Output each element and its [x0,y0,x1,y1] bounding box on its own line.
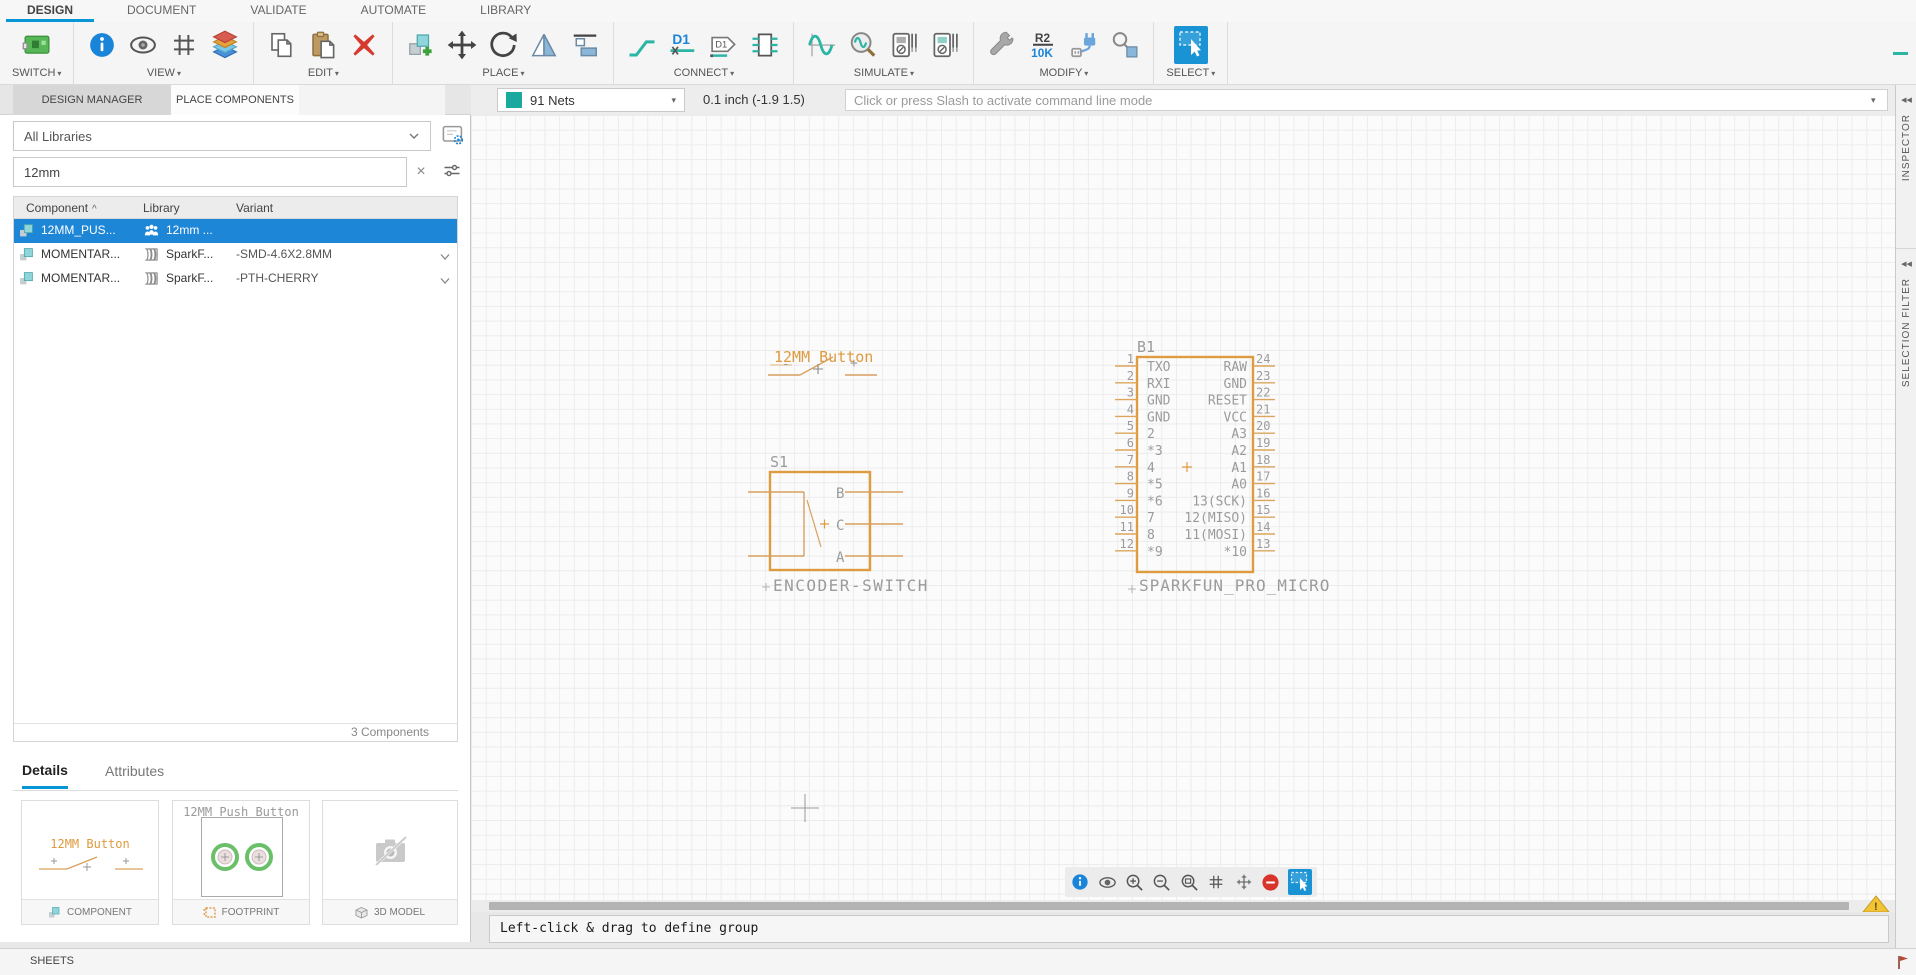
name-tag-text: D1 [716,39,728,49]
minus-circle-icon [1261,873,1280,892]
sort-asc-icon: ^ [92,204,97,215]
workspace-tab-bar: DESIGNDOCUMENTVALIDATEAUTOMATELIBRARY [0,0,1916,22]
select-window-button[interactable] [1288,869,1312,895]
pin-name: 8 [1147,528,1155,543]
pin-name: *6 [1147,494,1163,509]
net-label-button[interactable]: D1 [667,29,699,61]
plus-terminal-label: + [850,356,858,371]
pin-name: RESET [1208,394,1247,409]
component-search-input[interactable] [13,157,407,187]
schematic-canvas[interactable]: 12MM Button - + S1 B C A ENCODER- [471,115,1895,900]
pin-name: 4 [1147,461,1155,476]
morph-shape-button[interactable] [1109,29,1141,61]
cube-3d-icon [355,906,368,919]
net-label-text: D1 [673,31,691,46]
pin-name: RAW [1224,360,1248,375]
pin-number: 10 [1120,503,1134,517]
name-tag-icon: D1 [709,30,739,60]
pin-number: 21 [1256,402,1270,416]
grid-icon [169,30,199,60]
pin-name: TXO [1147,360,1171,375]
sim-probe-button[interactable] [847,29,879,61]
symbol-pro-micro[interactable]: B1 124TXORAW223RXIGND322GNDRESET421GNDVC… [1115,338,1330,595]
layers-icon [210,30,240,60]
selection-box-icon [1290,871,1310,893]
card-footer: COMPONENT [22,899,158,924]
expand-selection-filter-button[interactable]: ◀◀ [1896,256,1916,272]
visibility-button[interactable] [1097,871,1117,893]
variant-name: -SMD-4.6X2.8MM [236,247,332,261]
net-wire-icon [627,30,657,60]
delete-button[interactable] [348,29,380,61]
toolbar-group-label[interactable]: SELECT [1166,67,1209,79]
rotate-icon [488,30,518,60]
table-body: 12MM_PUS...12mm ...MOMENTAR...SparkF...-… [14,219,457,291]
menu-tab-library[interactable]: LIBRARY [453,0,558,22]
symbol-12mm-button[interactable]: 12MM Button - + [768,348,877,375]
component-name: MOMENTAR... [41,247,120,261]
dropdown-caret: ▾ [335,69,339,78]
crosshair-cursor [791,794,819,822]
toolbar-group-label[interactable]: VIEW [147,67,175,79]
pin-number: 7 [1127,453,1134,467]
scrollbar-thumb[interactable] [489,902,1849,910]
tab-label: PLACE COMPONENTS [176,94,294,106]
net-button[interactable] [626,29,658,61]
zoom-fit-button[interactable] [1179,871,1199,893]
component-preview-card[interactable]: 12MM Button COMPONENT [21,800,159,925]
dropdown-caret: ▾ [730,69,734,78]
align-icon [570,30,600,60]
inspector-label: INSPECTOR [1901,114,1912,181]
tab-place-components[interactable]: PLACE COMPONENTS [171,85,299,115]
switch-symbol-preview [31,853,151,879]
delete-x-icon [349,30,379,60]
align-button[interactable] [569,29,601,61]
pin-number: 23 [1256,369,1270,383]
tab-label: DESIGN MANAGER [42,94,143,106]
switch-document-button[interactable] [21,29,53,61]
card-footer-label: COMPONENT [67,907,132,918]
pin-number: 11 [1120,520,1134,534]
chevron-down-icon [408,132,420,140]
remove-button[interactable] [1261,871,1281,893]
status-message: Left-click & drag to define group [489,915,1889,943]
plug-icon [1069,30,1099,60]
library-filter-value: All Libraries [24,129,92,144]
toolbar-group-edit: EDIT▾ [254,22,393,84]
toolbar-group-label[interactable]: SWITCH [12,67,55,79]
crosshair-icon [1235,873,1253,891]
column-header-library[interactable]: Library [143,201,180,215]
library-name: SparkF... [166,271,213,285]
pin-name: A3 [1231,427,1247,442]
managed-library-icon [144,247,159,262]
zoom-in-icon [1125,873,1144,892]
grid-icon [1207,873,1225,891]
footprint-pads [201,817,283,897]
selection-filter-strip: ◀◀ SELECTION FILTER [1896,248,1916,387]
filter-sliders-icon [442,163,462,179]
pin-number: 4 [1127,402,1134,416]
pin-name: *5 [1147,478,1163,493]
nets-count-label: 91 Nets [530,93,575,108]
symbol-encoder-switch[interactable]: S1 B C A ENCODER-SWITCH [748,453,929,595]
pin-number: 3 [1127,386,1134,400]
horizontal-scrollbar[interactable] [471,900,1895,912]
pin-name: *3 [1147,444,1163,459]
pin-name: 7 [1147,511,1155,526]
pin-rows: 124TXORAW223RXIGND322GNDRESET421GNDVCC52… [1115,352,1275,560]
pin-name: VCC [1224,410,1247,425]
pin-name: GND [1147,394,1171,409]
zoom-out-icon [1152,873,1171,892]
board-icon [22,30,52,60]
layer-settings-button[interactable] [209,29,241,61]
eye-icon [128,30,158,60]
sine-wave-icon [807,30,837,60]
command-line-input[interactable] [845,89,1888,111]
details-tab-bar: Details Attributes [13,758,458,790]
grid-toggle-button[interactable] [1206,871,1226,893]
expand-variants-button[interactable] [439,250,451,264]
column-header-variant[interactable]: Variant [236,201,273,215]
library-settings-icon [441,124,465,146]
simulation-button[interactable] [806,29,838,61]
tools-button[interactable] [986,29,1018,61]
mirror-button[interactable] [528,29,560,61]
toolbar-group-simulate: SIMULATE▾ [794,22,974,84]
library-name: 12mm ... [166,223,213,237]
main-toolbar: SWITCH▾ VIEW▾ EDIT▾ [0,22,1916,85]
pin-name: A0 [1231,478,1247,493]
variant-name: -PTH-CHERRY [236,271,318,285]
component-results-table: Component^ Library Variant 12MM_PUS...12… [13,196,458,742]
model-3d-preview-card[interactable]: 3D MODEL [322,800,458,925]
component-preview-title: 12MM Button [22,837,158,851]
pin-number: 20 [1256,419,1270,433]
pin-name: 11(MOSI) [1184,528,1247,543]
canvas-top-bar: 91 Nets ▾ 0.1 inch (-1.9 1.5) ▾ [471,85,1895,115]
pin-name: GND [1224,377,1248,392]
flag-icon[interactable] [1896,954,1910,970]
library-name: SparkF... [166,247,213,261]
pin-number: 12 [1120,537,1134,551]
info-button[interactable] [86,29,118,61]
replace-button[interactable] [1068,29,1100,61]
pin-number: 6 [1127,436,1134,450]
footprint-icon [203,906,216,919]
dropdown-caret: ▾ [910,69,914,78]
copy-button[interactable] [266,29,298,61]
pin-number: 16 [1256,486,1270,500]
pin-label: A [836,550,845,566]
ref-designator: B1 [1137,338,1155,356]
pin-name: RXI [1147,377,1170,392]
table-row[interactable]: MOMENTAR...SparkF...-PTH-CHERRY [14,267,457,291]
value-val-text: 10K [1032,45,1054,59]
dropdown-caret: ▾ [1084,69,1088,78]
device-name: ENCODER-SWITCH [773,576,929,595]
component-name: MOMENTAR... [41,271,120,285]
part-icon [19,223,34,238]
select-window-button[interactable] [1173,25,1209,65]
pin-number: 13 [1256,537,1270,551]
add-part-icon [406,30,436,60]
card-footer: FOOTPRINT [173,899,309,924]
net-label-icon: D1 [668,30,698,60]
dropdown-caret: ▾ [1211,69,1215,78]
toolbar-group-modify: R210K MODIFY▾ [974,22,1154,84]
mirror-icon [529,30,559,60]
move-button[interactable] [446,29,478,61]
selection-filter-label: SELECTION FILTER [1901,278,1912,387]
bottom-bar: SHEETS [0,948,1916,975]
toolbar-group-select: SELECT▾ [1154,22,1228,84]
secondary-bar: DESIGN MANAGER PLACE COMPONENTS 91 Nets … [0,85,1916,115]
net-color-swatch [506,92,522,108]
menu-tab-automate[interactable]: AUTOMATE [334,0,454,22]
eye-icon [1098,873,1117,892]
value-ref-text: R2 [1035,30,1051,44]
component-icon [48,906,61,919]
zoom-fit-icon [1180,873,1199,892]
toolbar-group-label[interactable]: CONNECT [674,67,728,79]
no-image-camera-icon [372,833,410,867]
canvas-quick-toolbar [1065,867,1317,897]
pin-number: 18 [1256,453,1270,467]
card-footer-label: 3D MODEL [374,907,425,918]
toolbar-group-label[interactable]: PLACE [482,67,518,79]
pin-number: 24 [1256,352,1270,366]
chevron-down-icon [439,253,451,261]
column-header-component[interactable]: Component^ [26,201,97,215]
toolbar-group-view: VIEW▾ [74,22,254,84]
toolbar-group-label[interactable]: MODIFY [1040,67,1083,79]
toolbar-group-switch: SWITCH▾ [0,22,74,84]
pin-number: 15 [1256,503,1270,517]
ref-designator: S1 [770,453,788,471]
multimeter-percent-button[interactable] [929,29,961,61]
copy-icon [267,30,297,60]
pin-number: 1 [1127,352,1134,366]
info-icon [1071,873,1089,891]
schematic-drawing: 12MM Button - + S1 B C A ENCODER- [471,115,1895,900]
selection-box-icon [1178,30,1204,60]
ic-symbol-icon [750,30,780,60]
card-footer: 3D MODEL [323,899,457,924]
chevron-down-icon [439,277,451,285]
component-name: 12MM_PUS... [41,223,116,237]
place-components-panel: All Libraries × Component^ Library Varia… [0,115,471,942]
dropdown-caret: ▾ [520,69,524,78]
pin-name: GND [1147,410,1171,425]
device-name: SPARKFUN_PRO_MICRO [1139,576,1330,595]
expand-inspector-button[interactable]: ◀◀ [1896,92,1916,108]
toolbar-group-connect: D1 D1 CONNECT▾ [614,22,794,84]
pin-name: A2 [1231,444,1247,459]
pin-name: 2 [1147,427,1155,442]
paste-icon [308,30,338,60]
change-value-button[interactable]: R210K [1027,29,1059,61]
pin-name: *10 [1224,545,1247,560]
info-icon [87,30,117,60]
wrench-icon [987,30,1017,60]
inspector-strip: ◀◀ INSPECTOR [1896,89,1916,181]
menu-tab-document[interactable]: DOCUMENT [100,0,223,22]
clear-search-button[interactable]: × [410,160,432,184]
status-area: Left-click & drag to define group [471,912,1895,948]
footprint-preview-card[interactable]: 12MM Push Button FOOTPRINT [172,800,310,925]
right-panel-strip: ◀◀ INSPECTOR ◀◀ SELECTION FILTER [1895,85,1916,948]
minus-terminal-label: - [782,357,790,372]
pin-number: 19 [1256,436,1270,450]
bus-button[interactable] [749,29,781,61]
toolbar-group-place: PLACE▾ [393,22,614,84]
pin-number: 22 [1256,386,1270,400]
divider [13,790,458,791]
menu-tab-validate[interactable]: VALIDATE [223,0,333,22]
pin-number: 8 [1127,470,1134,484]
results-count: 3 Components [14,723,457,741]
toolbar-group-label[interactable]: EDIT [308,67,333,79]
expand-variants-button[interactable] [439,274,451,288]
value-icon: R210K [1028,30,1058,60]
probe-magnifier-icon [848,30,878,60]
table-row[interactable]: MOMENTAR...SparkF...-SMD-4.6X2.8MM [14,243,457,267]
card-footer-label: FOOTPRINT [222,907,280,918]
info-button[interactable] [1070,871,1090,893]
multimeter-button[interactable] [888,29,920,61]
grid-settings-button[interactable] [168,29,200,61]
pin-name: A1 [1231,461,1247,476]
multimeter-icon [889,30,919,60]
managed-library-icon [144,271,159,286]
team-library-icon [144,223,159,238]
pin-number: 2 [1127,369,1134,383]
zoom-out-button[interactable] [1152,871,1172,893]
dropdown-caret: ▾ [57,69,61,78]
table-header-row: Component^ Library Variant [14,197,457,219]
multimeter-percent-icon [930,30,960,60]
grid-coordinates-readout: 0.1 inch (-1.9 1.5) [703,85,805,115]
application-window: DESIGNDOCUMENTVALIDATEAUTOMATELIBRARY SW… [0,0,1916,975]
morph-icon [1110,30,1140,60]
pin-name: 12(MISO) [1184,511,1247,526]
origin-crosshair-button[interactable] [1234,871,1254,893]
pin-label: C [836,518,844,534]
sheets-label[interactable]: SHEETS [30,955,74,967]
pin-name: 13(SCK) [1192,494,1247,509]
library-manager-button[interactable] [440,124,466,148]
chevron-down-icon: ▾ [671,95,676,106]
pin-label: B [836,486,844,502]
dropdown-caret: ▾ [177,69,181,78]
nets-dropdown[interactable]: 91 Nets ▾ [497,88,685,112]
search-filter-button[interactable] [441,163,463,181]
pin-name: *9 [1147,545,1163,560]
tab-attributes[interactable]: Attributes [105,763,164,779]
tab-design-manager[interactable]: DESIGN MANAGER [13,85,171,115]
pin-number: 5 [1127,419,1134,433]
tab-empty [299,85,445,115]
toolbar-group-label[interactable]: SIMULATE [854,67,908,79]
tab-details[interactable]: Details [22,762,68,789]
part-icon [19,271,34,286]
visibility-button[interactable] [127,29,159,61]
toolbar-overflow-indicator [1893,52,1908,55]
table-row[interactable]: 12MM_PUS...12mm ... [14,219,457,243]
move-icon [447,30,477,60]
zoom-in-button[interactable] [1125,871,1145,893]
paste-button[interactable] [307,29,339,61]
name-button[interactable]: D1 [708,29,740,61]
pin-number: 9 [1127,486,1134,500]
warning-icon[interactable]: ! [1862,895,1890,913]
pin-number: 17 [1256,470,1270,484]
chevron-down-icon[interactable]: ▾ [1871,95,1876,106]
menu-tab-design[interactable]: DESIGN [0,0,100,22]
part-icon [19,247,34,262]
select-window-active-bg [1174,26,1208,64]
rotate-button[interactable] [487,29,519,61]
pin-number: 14 [1256,520,1270,534]
library-filter-select[interactable]: All Libraries [13,121,431,151]
add-part-button[interactable] [405,29,437,61]
